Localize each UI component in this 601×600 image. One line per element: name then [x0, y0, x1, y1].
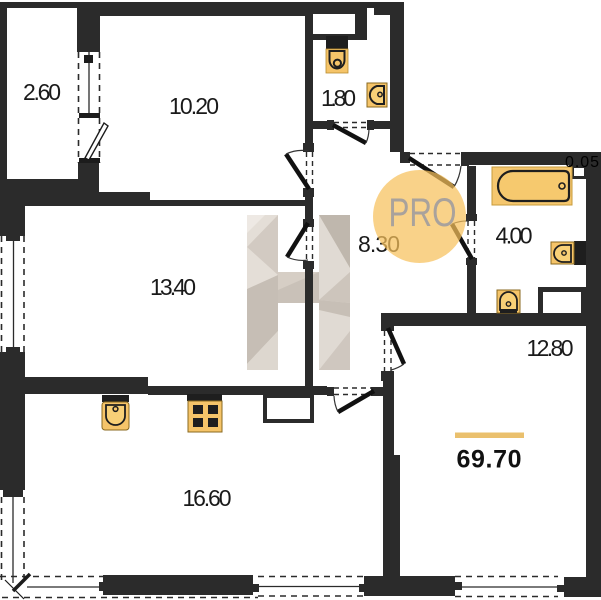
svg-text:10.20: 10.20 — [169, 93, 219, 119]
svg-text:4.00: 4.00 — [496, 223, 533, 249]
svg-text:13.40: 13.40 — [150, 274, 196, 300]
svg-text:16.60: 16.60 — [183, 485, 232, 511]
svg-text:12.80: 12.80 — [527, 335, 574, 361]
svg-text:69.70: 69.70 — [457, 446, 522, 474]
svg-text:0.05: 0.05 — [565, 154, 599, 171]
svg-text:1.80: 1.80 — [321, 85, 356, 111]
svg-text:2.60: 2.60 — [23, 79, 61, 105]
svg-text:PRO: PRO — [389, 191, 457, 235]
